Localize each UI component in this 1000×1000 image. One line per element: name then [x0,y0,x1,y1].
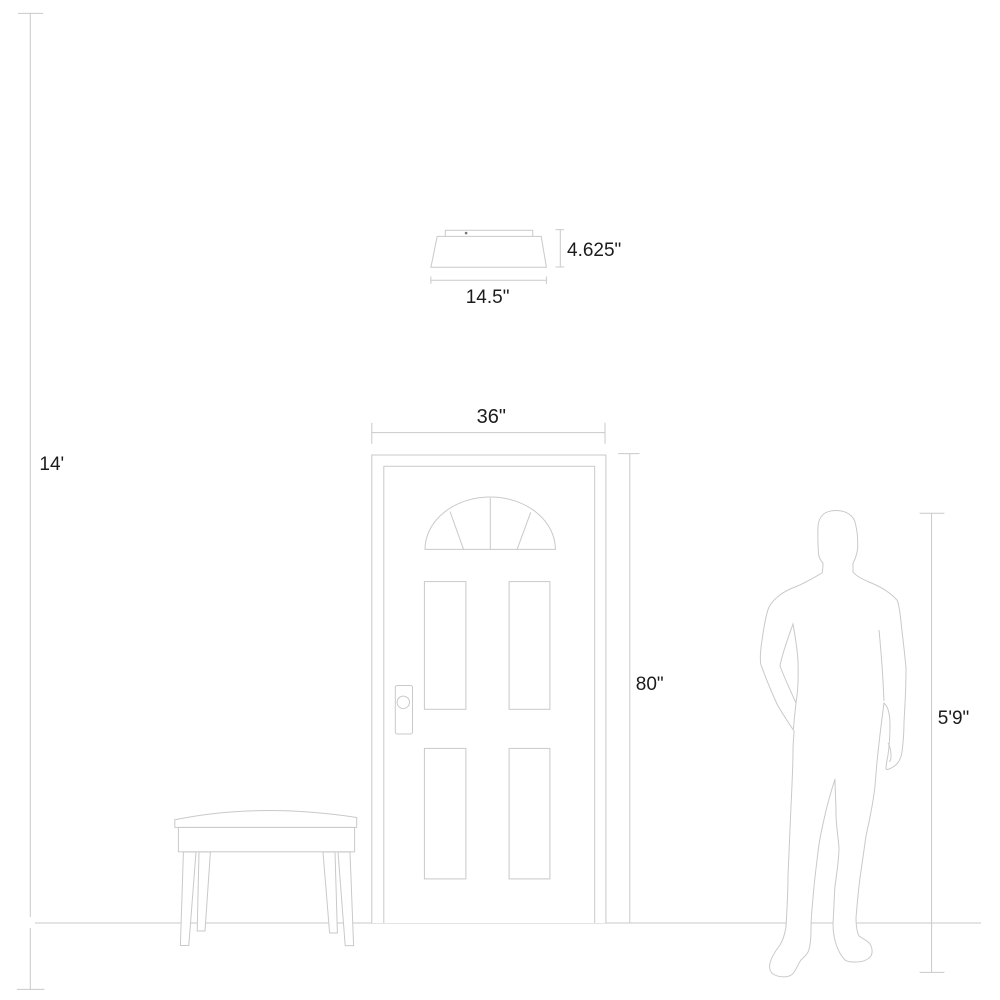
svg-text:5'9": 5'9" [938,708,970,729]
svg-text:36": 36" [477,406,506,428]
svg-text:4.625": 4.625" [567,240,621,261]
svg-text:14.5": 14.5" [466,287,510,308]
svg-text:80": 80" [636,674,664,695]
svg-text:14': 14' [39,454,64,475]
